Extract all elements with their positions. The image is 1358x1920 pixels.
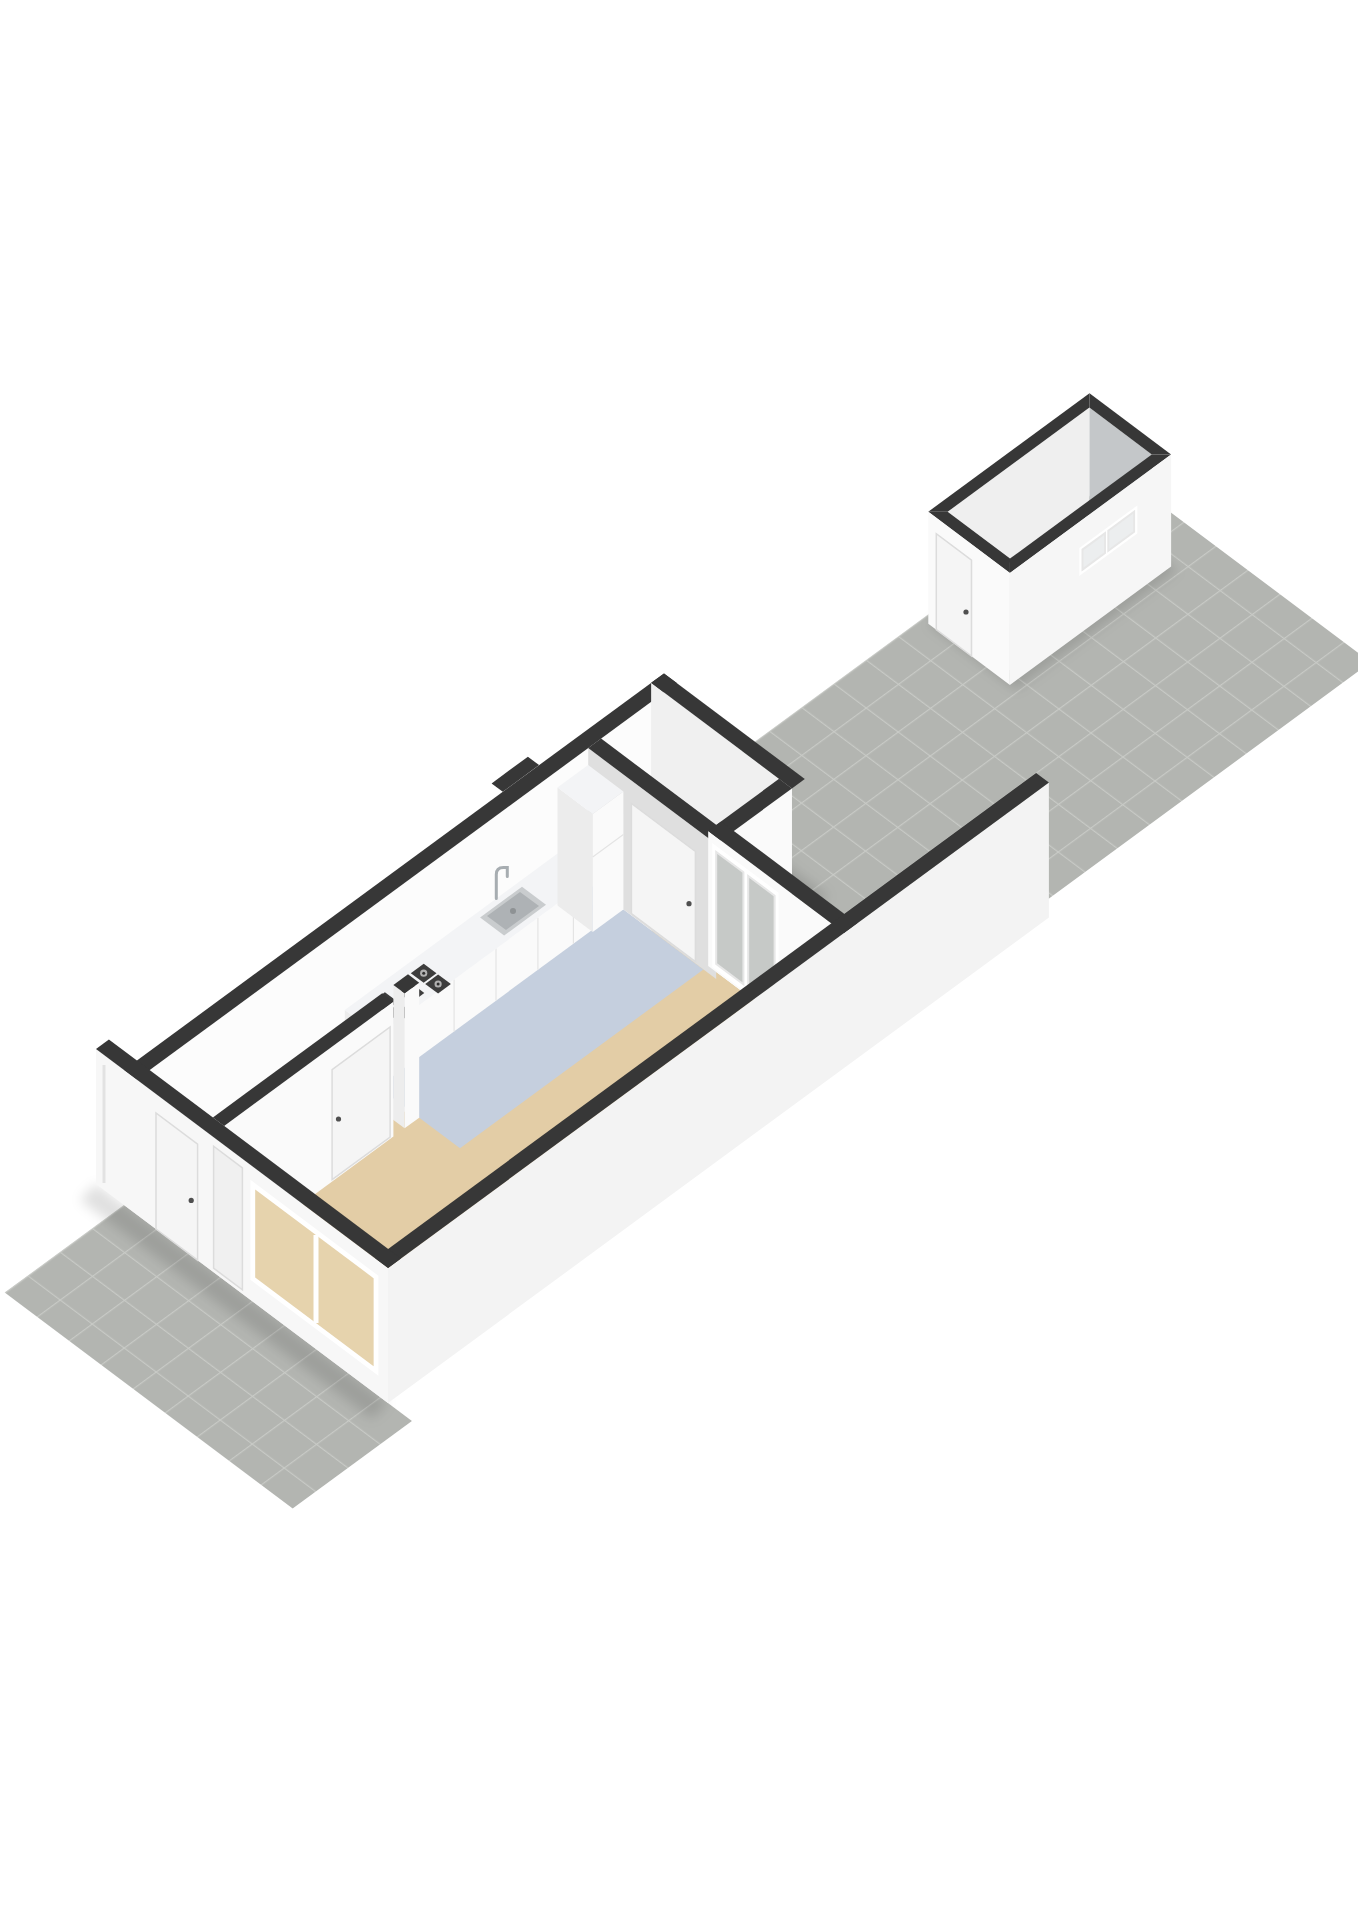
front-door-handle-icon xyxy=(189,1198,194,1203)
floorplan-viewport xyxy=(0,0,1358,1920)
tall-cabinet-front xyxy=(593,792,624,933)
sink-drain-icon xyxy=(510,908,516,914)
floorplan-3d-canvas xyxy=(0,0,1358,1920)
tall-cabinet xyxy=(558,765,624,932)
interior-door-handle-icon xyxy=(336,1116,341,1121)
front-side-panel xyxy=(214,1146,243,1290)
back-door-glass-left xyxy=(716,852,743,984)
hob-burner-center xyxy=(422,972,425,975)
hob-burner-center xyxy=(437,983,440,986)
partition-stub-face xyxy=(405,983,420,1129)
closet-door-handle-icon xyxy=(686,901,691,906)
shed-door-handle-icon xyxy=(963,609,968,614)
partition-stub-end xyxy=(393,985,404,1128)
